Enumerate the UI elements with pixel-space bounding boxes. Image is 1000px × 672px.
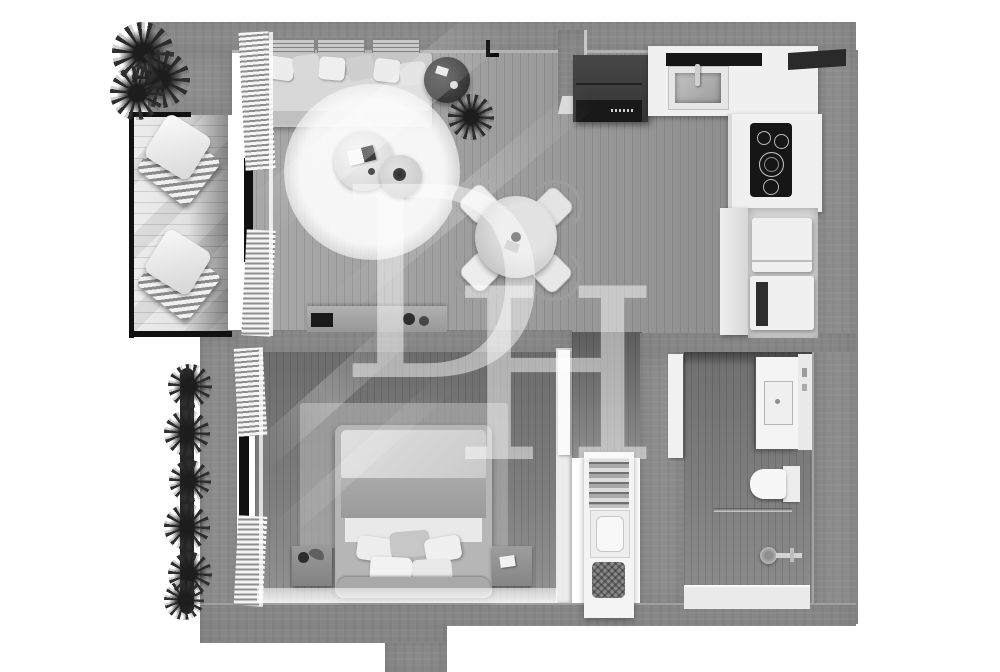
ceiling-vent-2 [317,38,365,54]
counter-backsplash-black [666,53,762,66]
plant-clump [110,66,164,120]
ceiling-vent-3 [372,38,420,54]
faucet [695,64,700,86]
balcony-railing-left [129,112,134,338]
sofa-pillow [292,53,322,80]
nightstand-book [499,555,515,568]
cooktop [750,123,792,197]
hedge-frond [164,580,204,620]
wall-bottom-stub [385,643,447,672]
watermark-letter-h: H [452,259,660,497]
burner [763,179,779,195]
balcony-railing-bottom [129,331,232,337]
closet-basket [592,562,625,598]
wall-bottom-thick [200,624,447,643]
tv-flat [311,313,333,327]
hedge-frond [164,410,210,456]
hedge-frond [169,460,211,502]
toiletry-item [802,368,807,377]
toiletry-item [802,384,807,391]
toilet [750,466,802,502]
shower-arm [776,553,802,558]
box-lid [596,516,624,552]
kitchen-sink [668,66,729,110]
appliance-upper [752,218,812,272]
closet-white-box [590,510,630,558]
hedge-frond [164,504,210,550]
pantry-cabinet [720,208,748,335]
shower-partition [714,508,792,512]
hedge-left [164,364,210,618]
floorplan-render: D H [0,0,1000,672]
fridge-panel-seam [576,83,642,85]
bathroom-door-leaf [668,354,683,458]
sofa-pillow [318,56,346,81]
nightstand-right [492,546,532,586]
vanity [756,357,798,449]
nightstand-left [292,546,332,586]
nightstand-sprig [308,546,327,562]
bedroom-floor-light-strip [257,588,557,603]
bedroom-window-glass [239,428,249,523]
shower-handle [790,548,794,562]
appliance-lower [750,276,814,330]
hedge-frond [168,364,212,408]
burner [774,134,789,149]
sofa-pillow [345,54,375,82]
appliance-control-strip [756,282,768,326]
planter-top-left [110,22,194,122]
vanity-faucet [775,399,780,404]
shower-fixture [760,546,804,566]
toilet-bowl [750,469,786,499]
shower-head [760,547,777,564]
shower-tray [684,585,810,609]
bedroom-window [236,348,266,606]
burner [757,131,771,145]
burner-large [759,152,784,177]
appliance-door-seam [752,260,812,262]
bedroom-window-frame [259,348,263,606]
nightstand-plant [298,552,309,563]
bath-side-ledge [798,354,812,450]
appliance-brand-text [611,109,635,112]
